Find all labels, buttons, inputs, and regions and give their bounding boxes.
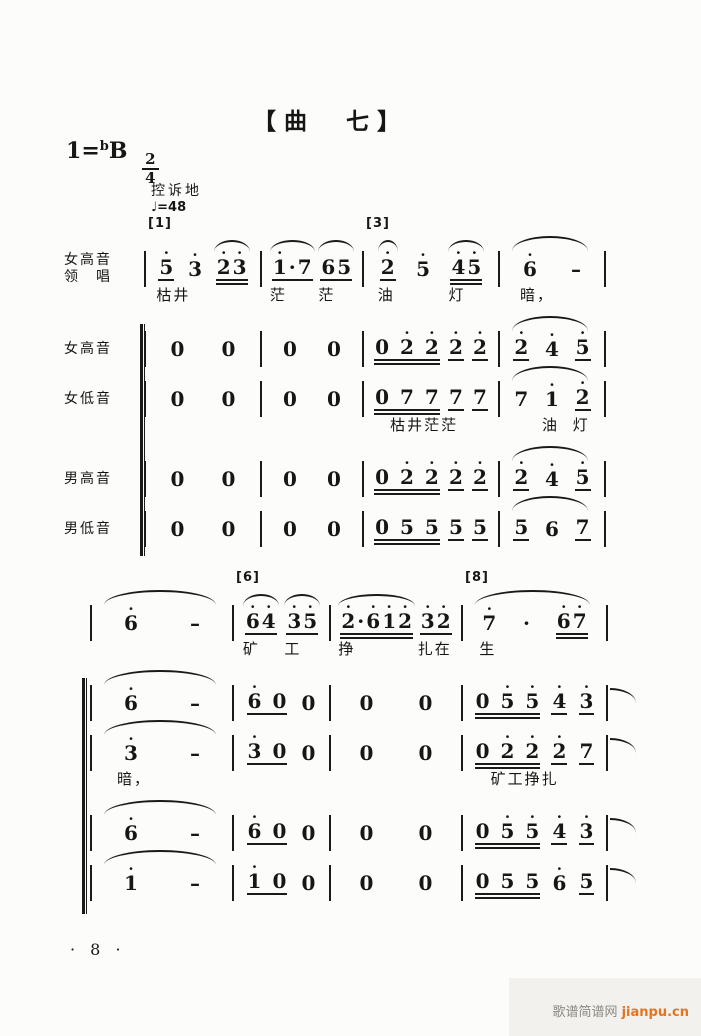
note-token: 4 xyxy=(551,691,567,715)
note-token: 6 xyxy=(123,693,139,713)
measure: 6 00 xyxy=(234,810,329,856)
score-page: 【曲 七】 1=bB 2 4 控诉地 ♩=48 女高音领 唱[1]5枯井3231… xyxy=(0,0,701,1036)
note-digit: 0 xyxy=(282,339,298,359)
note-token: 7 xyxy=(575,517,591,541)
note-digit xyxy=(490,821,499,841)
note-digit xyxy=(490,871,499,891)
note-token: 6 0 xyxy=(247,821,288,845)
note-digit: 5 xyxy=(513,517,529,537)
note-token: 0 xyxy=(359,743,375,763)
note-token: 64矿 xyxy=(245,611,277,635)
note-digit: 0 xyxy=(326,469,342,489)
note-digit xyxy=(390,387,399,407)
note-token: 5 xyxy=(579,871,595,895)
note-token: 0 xyxy=(221,389,237,409)
note-token: 23 xyxy=(216,257,248,281)
note-digit: 5 xyxy=(158,257,174,277)
note-digit: 0 xyxy=(170,389,186,409)
note-digit: – xyxy=(189,613,201,633)
note-digit xyxy=(415,337,424,357)
note-digit: 0 xyxy=(271,741,287,761)
note-token: 45灯 xyxy=(450,257,482,281)
note-digit: 0 xyxy=(359,873,375,893)
slur-arc xyxy=(475,590,590,605)
note-digit: 6 xyxy=(247,821,263,841)
note-digit: 0 xyxy=(301,743,317,763)
note-digit: 6 xyxy=(123,823,139,843)
voice-label-line: 女高音 xyxy=(64,252,140,269)
note-digit: 5 xyxy=(424,517,440,537)
note-token: 5 xyxy=(472,517,488,541)
voice-label: 女高音领 唱 xyxy=(64,252,144,286)
note-digit: 0 xyxy=(170,339,186,359)
voice-row-tenor: 男高音00000 2 222245 xyxy=(64,456,684,502)
rehearsal-mark: [3] xyxy=(366,216,390,231)
note-digit xyxy=(415,467,424,487)
voice-label: 女低音 xyxy=(64,391,144,408)
note-digit: 5 xyxy=(575,337,591,357)
note-token: 2 xyxy=(472,337,488,361)
measure: 0 2 2矿工挣扎27 xyxy=(463,730,606,776)
note-token: 32扎在 xyxy=(420,611,452,635)
note-token: 0 xyxy=(170,389,186,409)
measure: [6]64矿35工 xyxy=(234,600,329,646)
measure: 1 00 xyxy=(234,860,329,906)
note-digit: 0 xyxy=(282,519,298,539)
note-digit xyxy=(415,517,424,537)
measure: 00 xyxy=(146,456,260,502)
note-token: – xyxy=(189,693,201,713)
note-digit: 7 xyxy=(472,387,488,407)
note-token: 6 0 xyxy=(247,691,288,715)
measure: 3暗，– xyxy=(92,730,232,776)
note-digit xyxy=(515,871,524,891)
note-token: 65茫 xyxy=(320,257,352,281)
note-digit: 4 xyxy=(544,469,560,489)
note-digit: 3 xyxy=(247,741,263,761)
score: 女高音领 唱[1]5枯井3231·7茫65茫[3]2油545灯6暗，–女高音00… xyxy=(64,246,684,910)
note-token: 3 xyxy=(579,691,595,715)
note-digit: 0 xyxy=(418,693,434,713)
note-digit: 0 xyxy=(359,823,375,843)
measure: 3 00 xyxy=(234,730,329,776)
system-1: 女高音领 唱[1]5枯井3231·7茫65茫[3]2油545灯6暗，–女高音00… xyxy=(64,246,684,552)
note-token: 0 xyxy=(170,519,186,539)
measure: 1·7茫65茫 xyxy=(262,246,362,292)
note-token: 1 xyxy=(123,873,139,893)
note-token: 0 5 5 xyxy=(374,517,440,541)
note-digit: 2 xyxy=(448,467,464,487)
note-digit: 3 xyxy=(187,259,203,279)
note-token: 35工 xyxy=(286,611,318,635)
note-digit: 5 xyxy=(336,257,352,277)
measure: 00 xyxy=(146,326,260,372)
note-digit: 0 xyxy=(271,871,287,891)
note-token: 7 xyxy=(579,741,595,765)
page-number: · 8 · xyxy=(70,940,126,959)
flat-sign: b xyxy=(100,139,109,154)
voice-label-line: 女高音 xyxy=(64,341,140,358)
note-digit: 2 xyxy=(424,467,440,487)
note-digit: 5 xyxy=(399,517,415,537)
note-token: 0 xyxy=(326,339,342,359)
note-digit: 5 xyxy=(448,517,464,537)
note-token: 2 xyxy=(513,337,529,361)
note-digit: 3 xyxy=(579,821,595,841)
note-digit: 0 xyxy=(301,873,317,893)
note-token: 0 xyxy=(301,823,317,843)
lyric: 枯井 xyxy=(156,288,190,303)
note-digit xyxy=(390,517,399,537)
system-bracket xyxy=(82,678,87,914)
lyric: 生 xyxy=(479,642,496,657)
measure: 0 5 543 xyxy=(463,680,606,726)
barline xyxy=(606,735,608,771)
tie-arc xyxy=(610,738,636,753)
note-token: 3 0 xyxy=(247,741,288,765)
voice-row-soprano: 女高音00000 2 222245 xyxy=(64,326,684,372)
note-token: 0 xyxy=(301,693,317,713)
note-token: 5 xyxy=(415,259,431,279)
note-digit: 0 xyxy=(475,691,491,711)
note-digit: 0 xyxy=(475,741,491,761)
note-digit: 0 xyxy=(301,823,317,843)
note-digit xyxy=(262,741,271,761)
note-digit: 7 xyxy=(572,611,588,631)
tempo-marking: ♩=48 xyxy=(151,200,186,215)
note-token: 3 xyxy=(187,259,203,279)
measure: 0 5 565 xyxy=(463,860,606,906)
barline xyxy=(604,381,606,417)
note-digit: 6 xyxy=(123,613,139,633)
note-digit: 0 xyxy=(170,469,186,489)
note-digit: · xyxy=(522,613,531,633)
measure: 567 xyxy=(500,506,604,552)
note-digit: 7 xyxy=(399,387,415,407)
note-token: 67 xyxy=(556,611,588,635)
note-token: · xyxy=(522,613,531,633)
note-digit: 5 xyxy=(472,517,488,537)
note-digit: – xyxy=(189,823,201,843)
note-digit: – xyxy=(189,743,201,763)
note-digit: 0 xyxy=(221,389,237,409)
note-digit: 2 xyxy=(513,467,529,487)
slur-arc xyxy=(512,236,588,251)
note-digit xyxy=(262,821,271,841)
note-digit: 7 xyxy=(575,517,591,537)
note-token: – xyxy=(189,743,201,763)
note-digit: 7 xyxy=(481,613,497,633)
note-digit: 4 xyxy=(551,821,567,841)
lyric: 矿 xyxy=(243,642,260,657)
voice-label: 男高音 xyxy=(64,471,144,488)
barline xyxy=(606,865,608,901)
measure: [8]7生·67 xyxy=(463,600,606,646)
note-token: – xyxy=(570,259,582,279)
note-digit: 5 xyxy=(499,691,515,711)
note-digit: 6 xyxy=(556,611,572,631)
note-digit: 5 xyxy=(575,467,591,487)
note-token: 7 xyxy=(513,389,529,409)
note-token: 2·612挣 xyxy=(340,611,413,635)
note-digit: · xyxy=(356,611,365,631)
note-token: 0 xyxy=(418,693,434,713)
note-digit: 7 xyxy=(424,387,440,407)
note-digit: 0 xyxy=(221,519,237,539)
rehearsal-mark: [1] xyxy=(148,216,172,231)
note-token: 0 xyxy=(359,693,375,713)
measure: 0 7 7枯井茫茫77 xyxy=(364,376,498,422)
rehearsal-mark: [6] xyxy=(236,570,260,585)
note-digit: · xyxy=(288,257,297,277)
measure: 1– xyxy=(92,860,232,906)
voice-label-line: 男高音 xyxy=(64,471,140,488)
note-digit: 0 xyxy=(359,743,375,763)
note-digit: 3 xyxy=(420,611,436,631)
measure: 00 xyxy=(331,680,461,726)
note-digit: 3 xyxy=(123,743,139,763)
note-digit: 4 xyxy=(450,257,466,277)
note-token: 2 xyxy=(551,741,567,765)
note-digit: 0 xyxy=(475,871,491,891)
note-digit: 1 xyxy=(123,873,139,893)
note-digit: 7 xyxy=(513,389,529,409)
lyric: 扎在 xyxy=(418,642,452,657)
measure: 00 xyxy=(146,376,260,422)
watermark-site-name: 歌谱简谱网 xyxy=(552,1005,617,1020)
note-token: 0 xyxy=(282,469,298,489)
note-digit: 5 xyxy=(524,691,540,711)
note-token: 1油 xyxy=(544,389,560,409)
note-digit: 4 xyxy=(551,691,567,711)
measure: 00 xyxy=(262,376,362,422)
note-digit: 1 xyxy=(247,871,263,891)
note-token: 3暗， xyxy=(123,743,139,763)
lyric: 灯 xyxy=(573,418,590,433)
note-digit: 5 xyxy=(524,821,540,841)
measure: 6 00 xyxy=(234,680,329,726)
note-token: 2油 xyxy=(380,257,396,281)
note-digit: 2 xyxy=(472,337,488,357)
note-token: 6 xyxy=(544,519,560,539)
tie-arc xyxy=(610,818,636,833)
note-digit: 0 xyxy=(418,823,434,843)
system-2: 6–[6]64矿35工2·612挣32扎在[8]7生·676–6 00000 5… xyxy=(64,600,684,906)
note-token: 2灯 xyxy=(575,387,591,411)
voice-row-bass: 男低音00000 5 555567 xyxy=(64,506,684,552)
note-token: 0 xyxy=(282,339,298,359)
measure: 71油2灯 xyxy=(500,376,604,422)
key-do: 1 xyxy=(66,138,81,164)
voice-label-line: 男低音 xyxy=(64,521,140,538)
note-digit: 7 xyxy=(448,387,464,407)
measure: 6暗，– xyxy=(500,246,604,292)
tie-arc xyxy=(610,868,636,883)
lyric: 挣 xyxy=(338,642,355,657)
note-token: 0 xyxy=(221,519,237,539)
note-token: 6暗， xyxy=(522,259,538,279)
note-digit: 6 xyxy=(365,611,381,631)
note-token: 0 xyxy=(326,519,342,539)
note-digit: 6 xyxy=(551,873,567,893)
meter-numerator: 2 xyxy=(142,151,158,170)
slur-arc xyxy=(104,800,216,815)
measure: 0 2 222 xyxy=(364,456,498,502)
note-token: 5 xyxy=(448,517,464,541)
note-token: 0 5 5 xyxy=(475,691,541,715)
barline xyxy=(606,685,608,721)
note-digit: – xyxy=(189,873,201,893)
lyric: 枯井茫茫 xyxy=(390,418,458,433)
note-digit: 2 xyxy=(551,741,567,761)
measure: 6– xyxy=(92,600,232,646)
note-digit: 0 xyxy=(282,469,298,489)
note-token: 1 0 xyxy=(247,871,288,895)
note-token: 0 xyxy=(170,469,186,489)
note-digit: – xyxy=(189,693,201,713)
note-token: 0 xyxy=(301,743,317,763)
note-digit: 0 xyxy=(374,387,390,407)
lyric: 矿工挣扎 xyxy=(491,772,559,787)
note-digit: 5 xyxy=(579,871,595,891)
key-letter: B xyxy=(109,138,128,164)
lyric: 暗， xyxy=(520,288,554,303)
expression-marking: 控诉地 xyxy=(151,180,202,200)
note-token: 1·7茫 xyxy=(272,257,313,281)
note-digit: 5 xyxy=(499,871,515,891)
voice-row-alto: 3暗，–3 00000 2 2矿工挣扎27 xyxy=(64,730,684,776)
note-digit: 3 xyxy=(579,691,595,711)
note-token: 2 xyxy=(448,467,464,491)
note-digit xyxy=(390,467,399,487)
note-digit: 6 xyxy=(522,259,538,279)
measure: 00 xyxy=(262,506,362,552)
note-digit: 2 xyxy=(513,337,529,357)
note-token: 4 xyxy=(544,469,560,489)
measure: 2·612挣32扎在 xyxy=(331,600,461,646)
note-digit xyxy=(515,821,524,841)
note-token: 4 xyxy=(551,821,567,845)
note-digit: 1 xyxy=(544,389,560,409)
note-token: 0 xyxy=(418,743,434,763)
note-digit: 5 xyxy=(415,259,431,279)
note-digit: 6 xyxy=(320,257,336,277)
note-token: 0 2 2 xyxy=(374,337,440,361)
lyric: 油 xyxy=(542,418,559,433)
note-digit: 0 xyxy=(374,337,390,357)
note-token: 0 xyxy=(282,519,298,539)
note-token: 6 xyxy=(123,613,139,633)
note-digit: 7 xyxy=(579,741,595,761)
measure: 0 5 543 xyxy=(463,810,606,856)
note-token: 6 xyxy=(123,823,139,843)
voice-label: 女高音 xyxy=(64,341,144,358)
note-digit: 0 xyxy=(271,821,287,841)
note-digit xyxy=(490,691,499,711)
note-token: 7生 xyxy=(481,613,497,633)
note-digit: 2 xyxy=(575,387,591,407)
note-digit: 0 xyxy=(326,339,342,359)
note-token: 0 5 5 xyxy=(475,821,541,845)
note-token: 5 xyxy=(575,467,591,491)
note-token: 0 xyxy=(221,469,237,489)
note-digit xyxy=(390,337,399,357)
note-digit: 2 xyxy=(399,467,415,487)
note-digit: 0 xyxy=(418,743,434,763)
note-digit: 2 xyxy=(472,467,488,487)
key-signature: 1=bB 2 4 xyxy=(66,138,159,186)
barline xyxy=(604,461,606,497)
note-digit xyxy=(515,741,524,761)
note-token: 6 xyxy=(551,873,567,893)
note-digit: 0 xyxy=(359,693,375,713)
note-digit: 2 xyxy=(340,611,356,631)
note-token: – xyxy=(189,613,201,633)
lyric: 茫 xyxy=(318,288,335,303)
note-digit: – xyxy=(570,259,582,279)
note-digit: 2 xyxy=(399,337,415,357)
note-digit: 5 xyxy=(499,821,515,841)
note-token: – xyxy=(189,873,201,893)
measure: 00 xyxy=(146,506,260,552)
note-digit: 0 xyxy=(221,469,237,489)
note-digit: 0 xyxy=(170,519,186,539)
note-digit: 0 xyxy=(475,821,491,841)
note-digit xyxy=(262,871,271,891)
slur-arc xyxy=(104,590,216,605)
barline xyxy=(606,815,608,851)
measure: 00 xyxy=(262,456,362,502)
barline xyxy=(604,251,606,287)
note-digit: 2 xyxy=(216,257,232,277)
voice-row-lead-soprano: 6–[6]64矿35工2·612挣32扎在[8]7生·67 xyxy=(64,600,684,646)
lyric: 工 xyxy=(284,642,301,657)
note-digit: 0 xyxy=(282,389,298,409)
note-digit: 2 xyxy=(524,741,540,761)
lyric: 暗， xyxy=(117,772,151,787)
note-digit: 0 xyxy=(374,467,390,487)
lyric: 灯 xyxy=(448,288,465,303)
note-token: 0 xyxy=(326,389,342,409)
note-digit: 0 xyxy=(326,389,342,409)
voice-label-line: 领 唱 xyxy=(64,269,140,286)
note-token: 0 xyxy=(170,339,186,359)
note-digit: 3 xyxy=(286,611,302,631)
note-token: 0 7 7枯井茫茫 xyxy=(374,387,440,411)
measure: 00 xyxy=(262,326,362,372)
note-digit: 0 xyxy=(326,519,342,539)
measure: 0 2 222 xyxy=(364,326,498,372)
note-token: 2 xyxy=(472,467,488,491)
note-token: 5枯井 xyxy=(158,257,174,281)
voice-row-bass: 1–1 00000 5 565 xyxy=(64,860,684,906)
note-digit xyxy=(515,691,524,711)
note-digit: 3 xyxy=(232,257,248,277)
note-token: – xyxy=(189,823,201,843)
system-bracket xyxy=(140,324,145,556)
lyric: 油 xyxy=(378,288,395,303)
measure: 00 xyxy=(331,730,461,776)
note-digit: 1 xyxy=(381,611,397,631)
note-digit: 5 xyxy=(524,871,540,891)
note-token: 2 xyxy=(448,337,464,361)
note-digit: 2 xyxy=(424,337,440,357)
note-digit: 5 xyxy=(466,257,482,277)
note-digit: 0 xyxy=(301,693,317,713)
note-digit: 2 xyxy=(397,611,413,631)
note-token: 0 xyxy=(326,469,342,489)
slur-arc xyxy=(104,670,216,685)
